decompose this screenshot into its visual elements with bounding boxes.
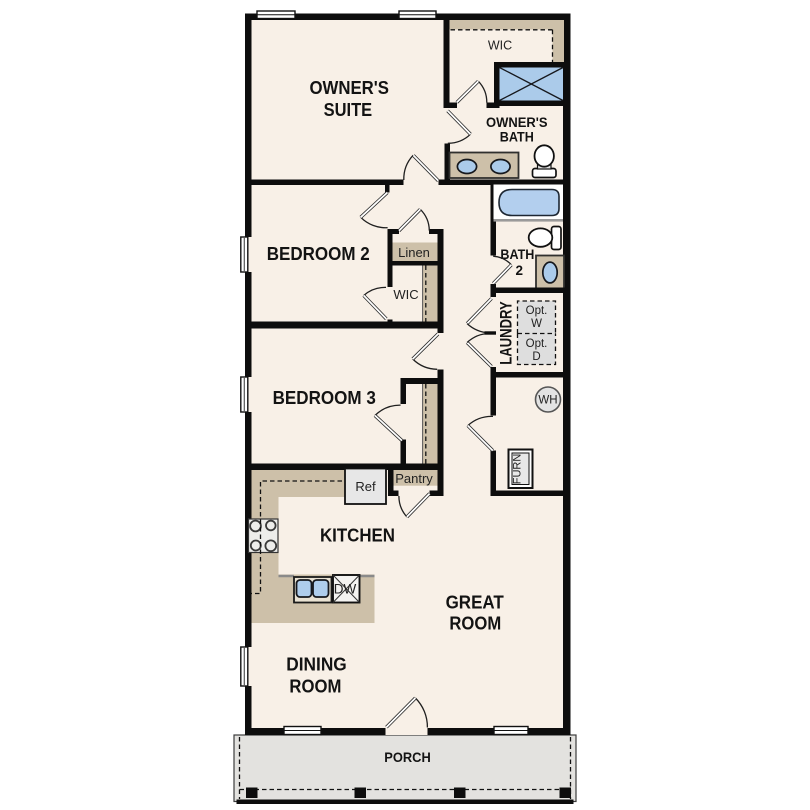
svg-text:2: 2 — [516, 263, 524, 278]
svg-text:OWNER'S: OWNER'S — [486, 115, 548, 130]
svg-text:Linen: Linen — [398, 245, 430, 260]
svg-text:KITCHEN: KITCHEN — [320, 526, 395, 546]
svg-text:GREAT: GREAT — [446, 593, 504, 613]
svg-text:WIC: WIC — [488, 39, 512, 53]
svg-text:D: D — [532, 351, 540, 363]
svg-text:BEDROOM 2: BEDROOM 2 — [267, 244, 370, 264]
svg-text:DINING: DINING — [286, 655, 347, 675]
svg-text:SUITE: SUITE — [324, 100, 373, 120]
svg-text:ROOM: ROOM — [289, 676, 341, 696]
svg-text:DW: DW — [334, 582, 357, 597]
svg-text:BEDROOM 3: BEDROOM 3 — [273, 388, 376, 408]
svg-text:Ref: Ref — [355, 479, 376, 494]
svg-text:W: W — [531, 318, 542, 330]
svg-text:FURN: FURN — [512, 454, 524, 485]
svg-text:Opt.: Opt. — [526, 338, 548, 350]
svg-text:Pantry: Pantry — [395, 471, 433, 486]
svg-text:LAUNDRY: LAUNDRY — [496, 301, 515, 365]
svg-text:BATH: BATH — [500, 130, 534, 145]
svg-text:OWNER'S: OWNER'S — [309, 78, 389, 98]
svg-text:WIC: WIC — [393, 287, 418, 302]
svg-text:PORCH: PORCH — [384, 749, 431, 765]
svg-text:Opt.: Opt. — [526, 305, 548, 317]
svg-text:ROOM: ROOM — [449, 613, 501, 633]
svg-text:WH: WH — [538, 395, 557, 407]
